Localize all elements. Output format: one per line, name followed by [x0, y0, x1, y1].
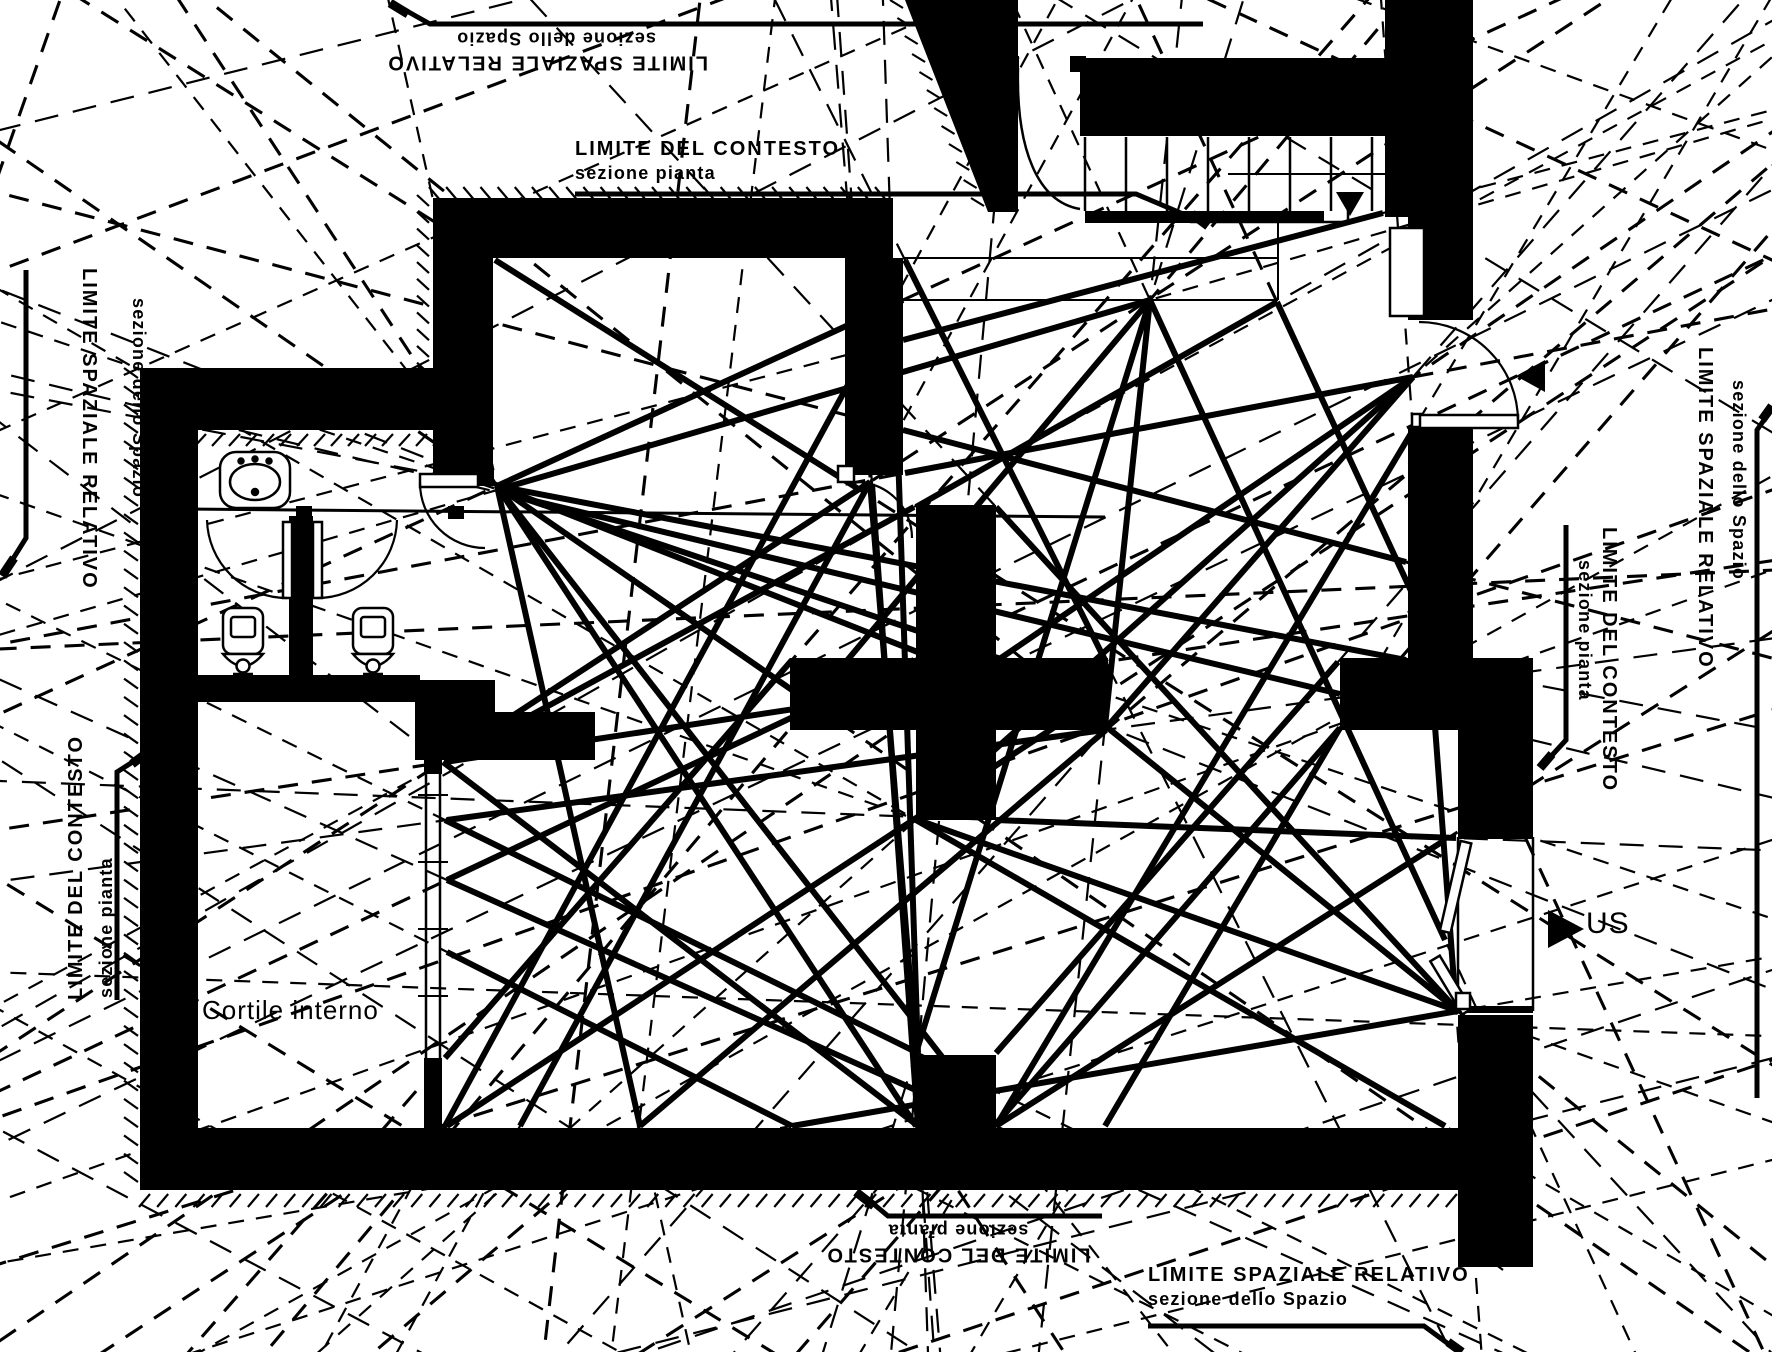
label-line: LIMITE DEL CONTESTO: [1596, 527, 1622, 792]
drawing-sheet: LIMITE SPAZIALE RELATIVO sezione dello S…: [0, 0, 1772, 1352]
label-line: sezione dello Spazio: [1148, 1288, 1470, 1311]
label-line: sezione dello Spazio: [127, 298, 150, 498]
label-line: sezione dello Spazio: [404, 26, 708, 49]
label-top-limite-spaziale-relativo: LIMITE SPAZIALE RELATIVO sezione dello S…: [404, 26, 708, 75]
label-line: sezione pianta: [806, 1218, 1110, 1241]
label-line: LIMITE SPAZIALE RELATIVO: [404, 49, 708, 75]
label-left-limite-del-contesto: LIMITE DEL CONTESTO: [63, 735, 89, 1000]
label-right-sezione-pianta: sezione pianta: [1573, 560, 1596, 701]
label-right-limite-spaziale-relativo: LIMITE SPAZIALE RELATIVO: [1692, 347, 1718, 669]
sink-fixture: [220, 452, 290, 508]
label-left-sezione-pianta: sezione pianta: [95, 857, 118, 998]
label-line: sezione pianta: [95, 857, 118, 998]
label-line: LIMITE SPAZIALE RELATIVO: [1692, 347, 1718, 669]
label-line: sezione pianta: [575, 162, 840, 185]
label-line: sezione dello Spazio: [1727, 380, 1750, 580]
label-line: LIMITE SPAZIALE RELATIVO: [1148, 1262, 1470, 1288]
label-us-exit: US: [1586, 904, 1630, 943]
label-line: LIMITE DEL CONTESTO: [575, 136, 840, 162]
label-top-limite-del-contesto: LIMITE DEL CONTESTO sezione pianta: [575, 136, 840, 185]
label-line: LIMITE SPAZIALE RELATIVO: [76, 268, 102, 590]
label-bottom-limite-del-contesto: LIMITE DEL CONTESTO sezione pianta: [806, 1218, 1110, 1267]
stair-handrail: [1018, 68, 1080, 209]
label-bottom-limite-spaziale-relativo: LIMITE SPAZIALE RELATIVO sezione dello S…: [1148, 1262, 1470, 1311]
label-line: sezione pianta: [1573, 560, 1596, 701]
thin-construction-lines: [124, 0, 1533, 1270]
label-cortile-interno: Cortile interno: [202, 994, 379, 1028]
label-left-sezione-dello-spazio: sezione dello Spazio: [127, 298, 150, 498]
label-left-limite-spaziale-relativo: LIMITE SPAZIALE RELATIVO: [76, 268, 102, 590]
label-right-limite-del-contesto: LIMITE DEL CONTESTO: [1596, 527, 1622, 792]
toilet-fixture: [223, 608, 263, 674]
label-line: LIMITE DEL CONTESTO: [63, 735, 89, 1000]
floor-plan-drawing: [0, 0, 1772, 1352]
label-line: LIMITE DEL CONTESTO: [806, 1241, 1110, 1267]
label-right-sezione-dello-spazio: sezione dello Spazio: [1727, 380, 1750, 580]
toilet-fixture: [353, 608, 393, 674]
